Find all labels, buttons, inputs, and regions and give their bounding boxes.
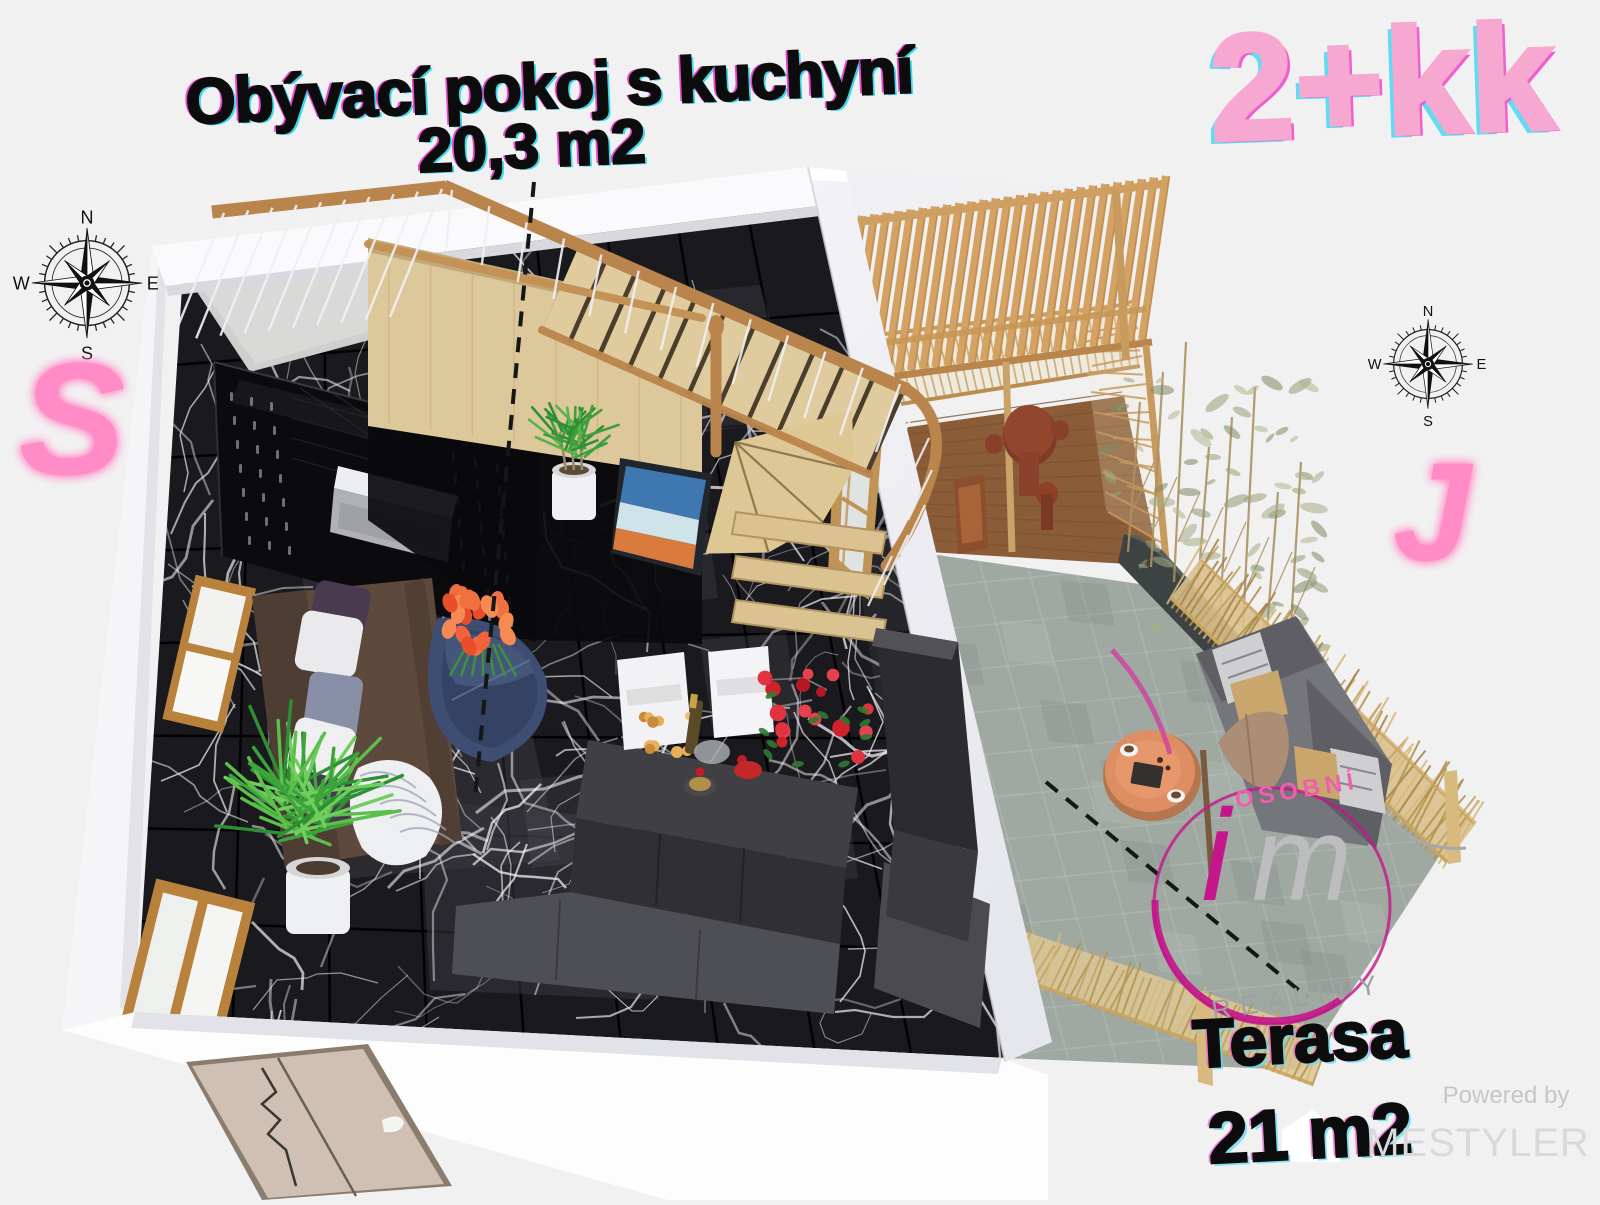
svg-text:20,3 m2: 20,3 m2 (417, 107, 647, 186)
svg-text:N: N (1423, 304, 1434, 320)
svg-text:S: S (19, 329, 126, 508)
svg-text:E: E (1476, 357, 1486, 373)
svg-text:E: E (147, 273, 159, 293)
svg-text:N: N (81, 208, 94, 228)
svg-text:MESTYLER: MESTYLER (1366, 1121, 1590, 1165)
svg-text:W: W (1368, 357, 1382, 373)
svg-text:W: W (13, 273, 30, 293)
svg-text:J: J (1393, 433, 1474, 590)
svg-text:2+kk: 2+kk (1207, 0, 1559, 172)
svg-text:i: i (1202, 782, 1234, 928)
svg-text:m: m (1252, 792, 1352, 926)
svg-text:Powered by: Powered by (1443, 1082, 1570, 1109)
svg-text:S: S (1423, 414, 1433, 430)
svg-text:Terasa: Terasa (1191, 995, 1410, 1082)
